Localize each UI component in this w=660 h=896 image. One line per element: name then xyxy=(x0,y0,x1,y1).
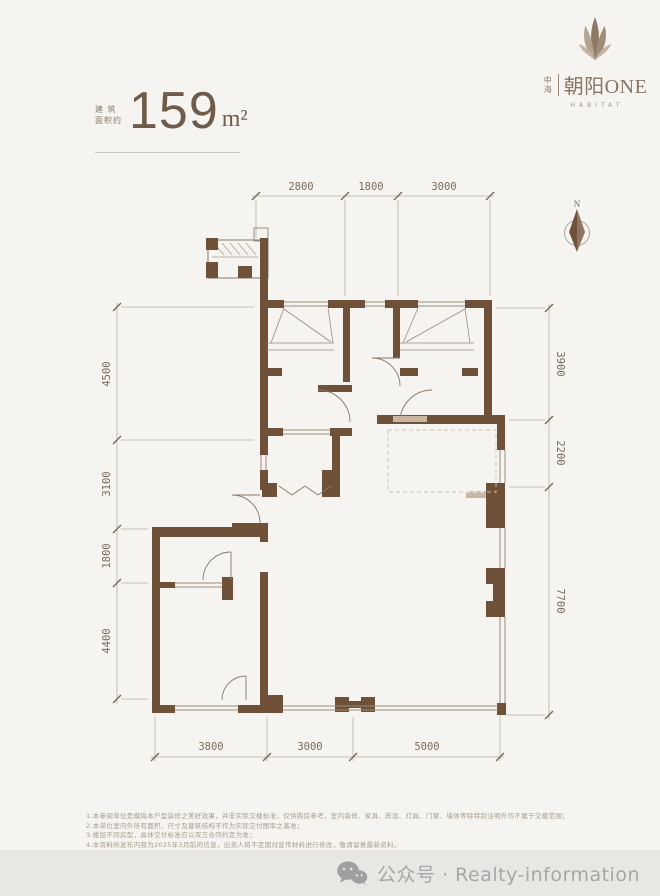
svg-text:3000: 3000 xyxy=(431,181,456,193)
svg-text:3900: 3900 xyxy=(554,351,566,376)
svg-text:N: N xyxy=(574,199,581,209)
counter-marks xyxy=(393,416,486,498)
svg-text:2800: 2800 xyxy=(288,181,313,193)
svg-text:3800: 3800 xyxy=(198,741,223,753)
floor-plan-svg: N 2800 1800 3000 xyxy=(0,0,660,810)
balcony xyxy=(206,228,268,278)
svg-text:4400: 4400 xyxy=(101,628,113,653)
disclaimer-line: 4.本资料所发布内容为2025年3月前的信息，出卖人将不定期对宣传材料进行修改，… xyxy=(86,841,605,851)
dimension-left: 4500 3100 1800 4400 xyxy=(101,303,254,704)
svg-text:3000: 3000 xyxy=(297,741,322,753)
dimension-bottom: 3800 3000 5000 xyxy=(151,713,504,761)
footer-bar: 公众号 · Realty-information xyxy=(0,850,660,896)
compass-icon: N xyxy=(565,199,590,252)
svg-text:3100: 3100 xyxy=(101,471,113,496)
svg-text:1800: 1800 xyxy=(358,181,383,193)
disclaimer: 1.本参阅单位是模拟本户型装修之美好效果，并非实际交楼标准，仅供购房参考，室内装… xyxy=(86,812,605,850)
footer-account-label: 公众号 · Realty-information xyxy=(377,860,640,887)
bay-windows xyxy=(266,308,474,350)
svg-text:1800: 1800 xyxy=(101,543,113,568)
disclaimer-line: 2.本单位室内外所有面积、尺寸及建筑结构不作为实际交付图审之基准； xyxy=(86,822,605,832)
dimension-right: 3900 2200 7700 xyxy=(496,304,566,719)
floorplan-poster: 建 筑 面积约 159 m² 中海 朝阳ONE HABITAT N xyxy=(0,0,660,896)
dimension-top: 2800 1800 3000 xyxy=(252,181,494,296)
walls xyxy=(152,238,506,715)
windows xyxy=(175,302,505,710)
wall-notch xyxy=(486,584,493,601)
svg-text:4500: 4500 xyxy=(101,361,113,386)
svg-text:5000: 5000 xyxy=(414,741,439,753)
dashed-areas xyxy=(388,430,496,492)
svg-text:7700: 7700 xyxy=(554,588,566,613)
wechat-official-account-icon xyxy=(336,859,368,887)
disclaimer-line: 1.本参阅单位是模拟本户型装修之美好效果，并非实际交楼标准，仅供购房参考，室内装… xyxy=(86,812,605,822)
svg-text:2200: 2200 xyxy=(554,440,566,465)
disclaimer-line: 3.楼层不同房型，具体交付标准应以双方合同约定为准； xyxy=(86,831,605,841)
